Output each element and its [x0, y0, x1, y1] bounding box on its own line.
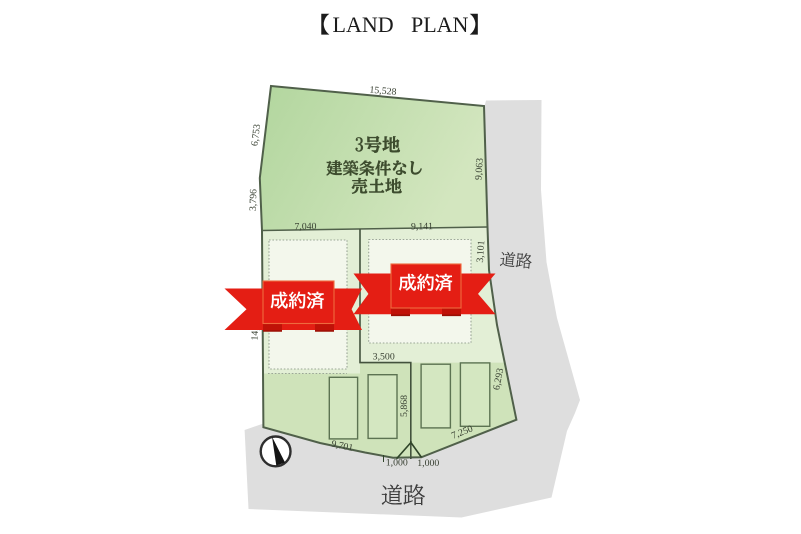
svg-text:5,868: 5,868	[399, 395, 410, 417]
svg-text:1,000: 1,000	[386, 458, 408, 469]
svg-text:3,500: 3,500	[373, 352, 395, 363]
svg-text:3,796: 3,796	[248, 189, 260, 212]
svg-text:PLAN: PLAN	[411, 12, 469, 37]
svg-text:9,141: 9,141	[411, 221, 433, 232]
svg-text:7,040: 7,040	[294, 221, 316, 232]
svg-text:LAND: LAND	[333, 12, 394, 37]
svg-text:1,000: 1,000	[417, 458, 439, 469]
svg-text:9,063: 9,063	[473, 158, 486, 181]
svg-text:3,101: 3,101	[475, 240, 488, 263]
